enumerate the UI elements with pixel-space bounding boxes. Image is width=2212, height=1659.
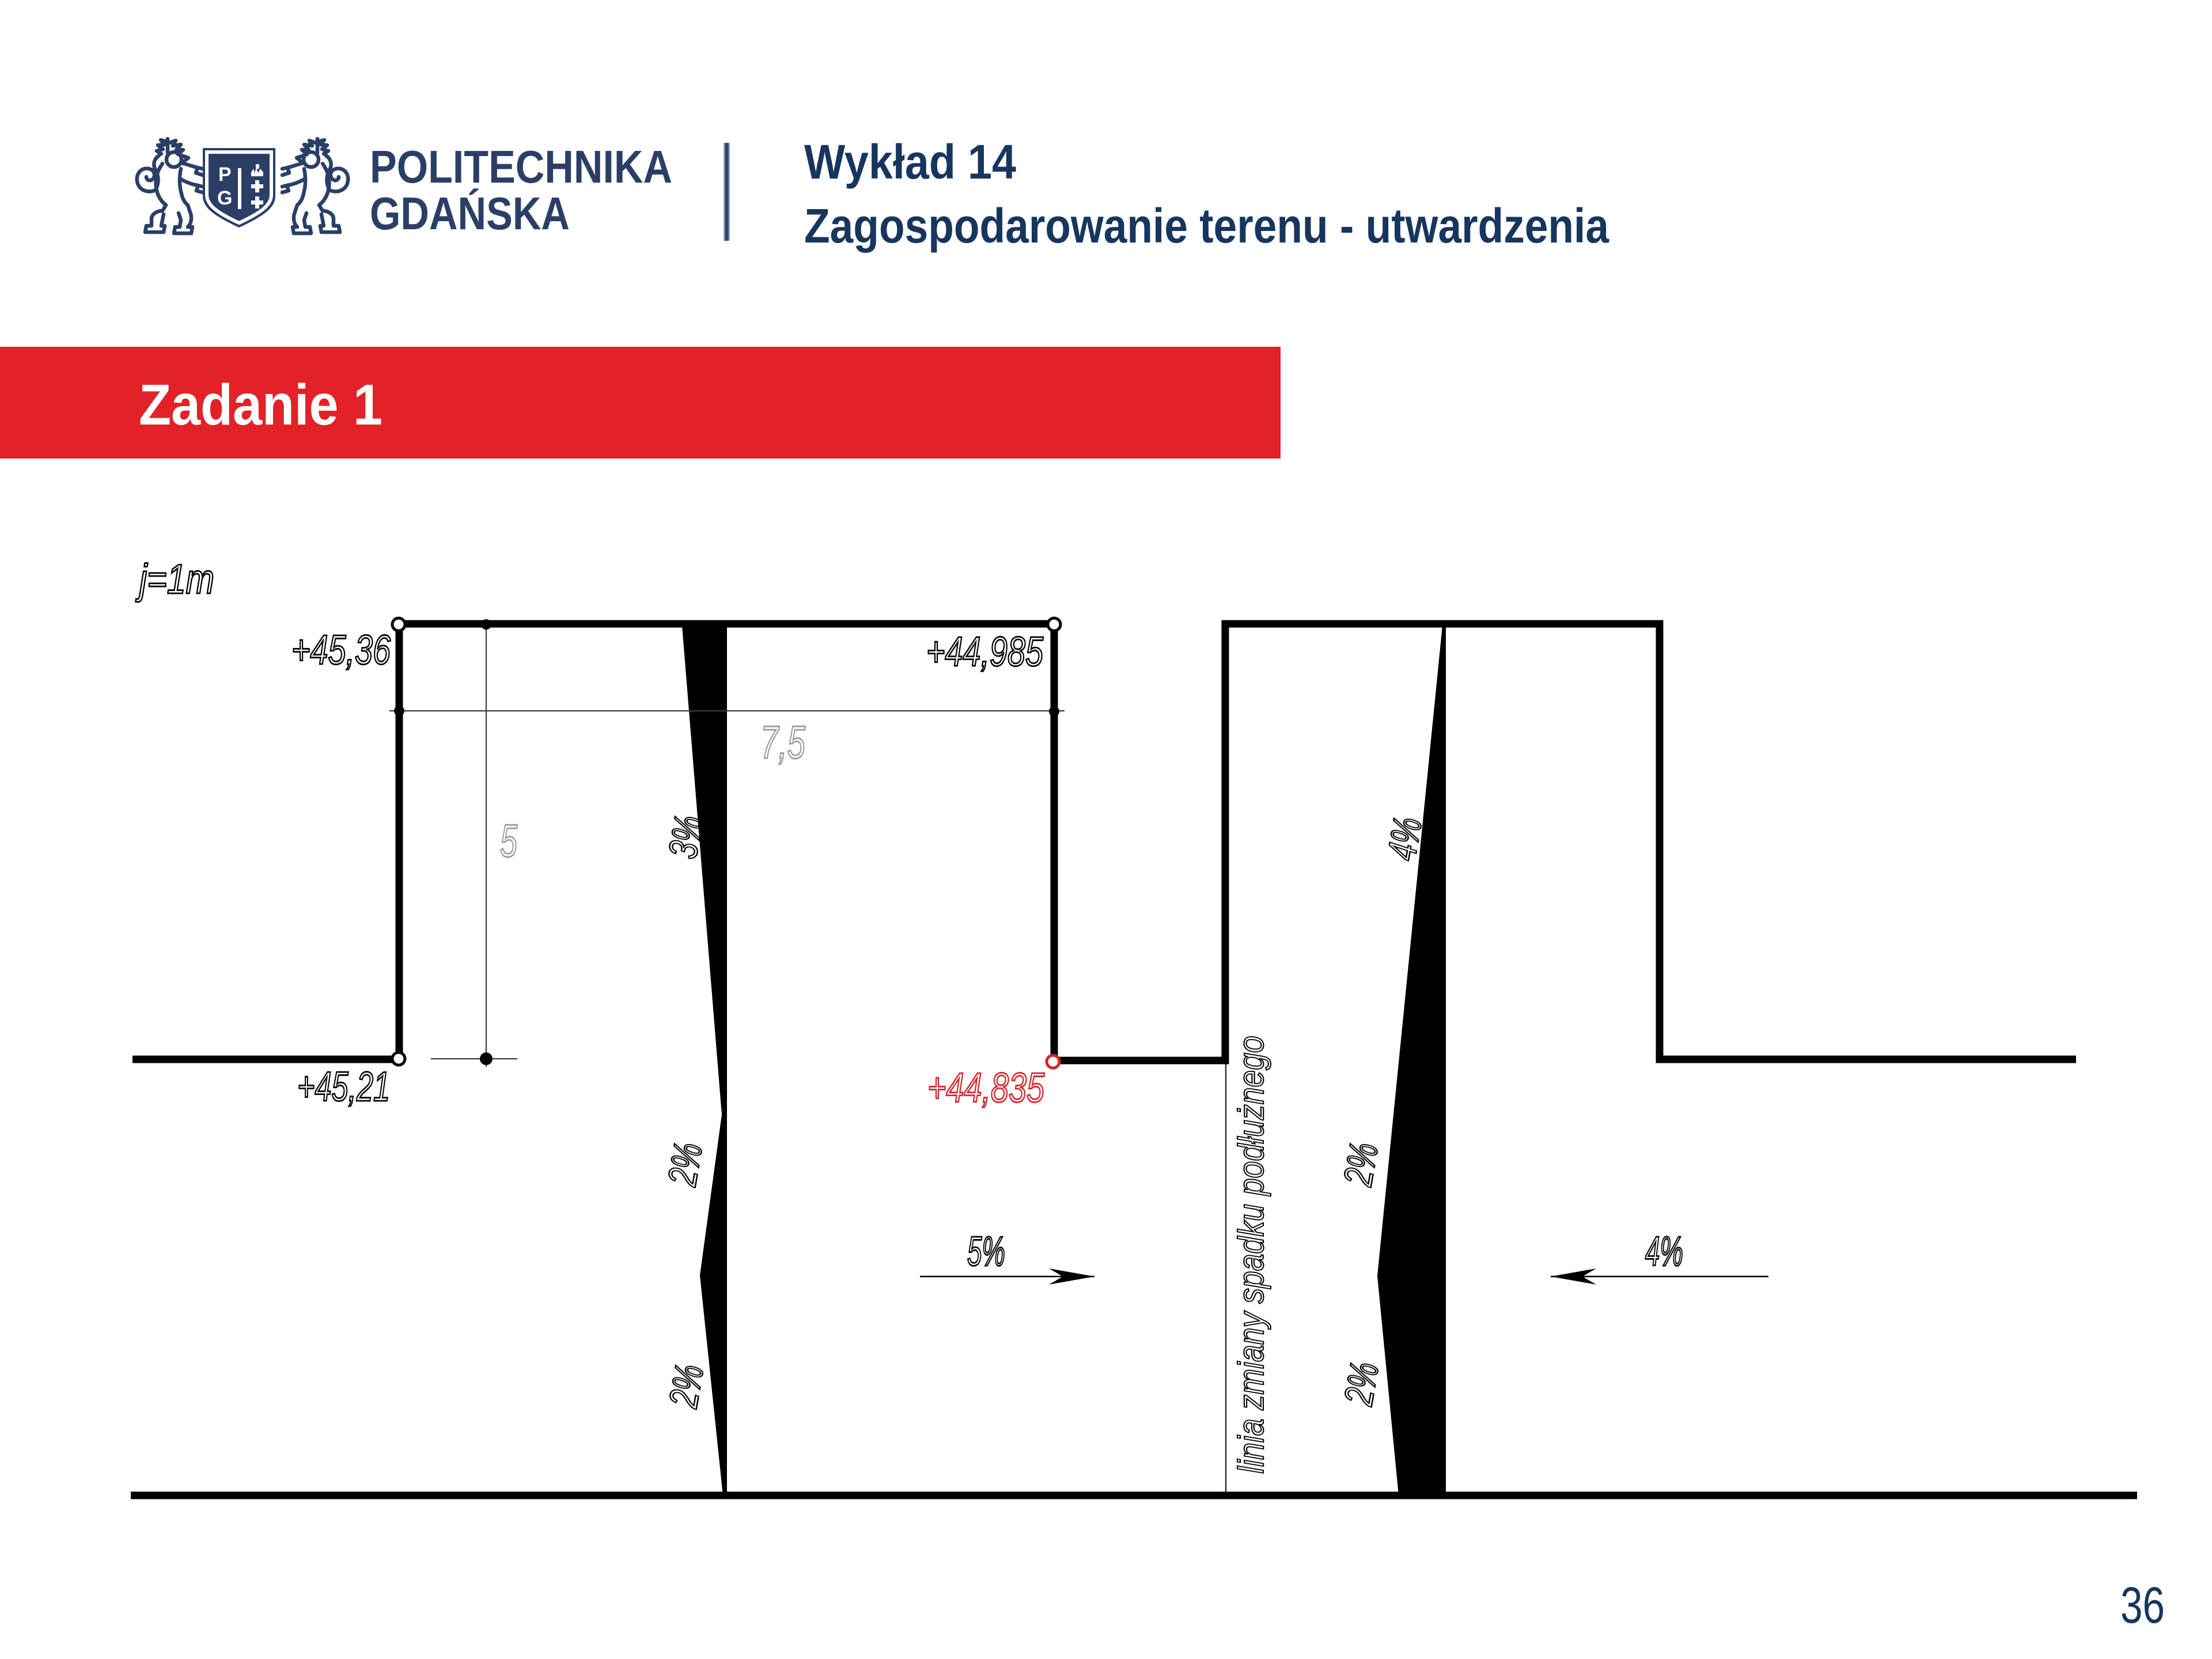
svg-text:Wykład 14: Wykład 14	[804, 135, 1016, 189]
svg-text:4%: 4%	[1645, 1229, 1683, 1275]
svg-text:+44,835: +44,835	[927, 1065, 1045, 1111]
svg-text:P: P	[218, 164, 232, 185]
svg-text:j=1m: j=1m	[135, 556, 214, 603]
svg-text:G: G	[217, 187, 232, 209]
svg-text:2%: 2%	[1335, 1139, 1387, 1190]
svg-text:Zadanie 1: Zadanie 1	[139, 373, 382, 437]
svg-text:2%: 2%	[659, 1139, 711, 1190]
svg-text:36: 36	[2120, 1576, 2165, 1634]
svg-text:POLITECHNIKA: POLITECHNIKA	[370, 141, 672, 192]
svg-text:4%: 4%	[1379, 814, 1431, 863]
svg-text:3%: 3%	[660, 812, 712, 862]
svg-text:5: 5	[500, 815, 517, 866]
svg-text:5%: 5%	[967, 1229, 1005, 1275]
svg-text:GDAŃSKA: GDAŃSKA	[370, 188, 570, 239]
svg-text:2%: 2%	[1335, 1359, 1387, 1409]
svg-text:+45,36: +45,36	[291, 627, 391, 673]
svg-text:linia zmiany spadku podłużnego: linia zmiany spadku podłużnego	[1232, 1036, 1271, 1474]
svg-text:+45,21: +45,21	[297, 1064, 390, 1110]
svg-text:2%: 2%	[660, 1361, 712, 1411]
svg-text:Zagospodarowanie terenu - utwa: Zagospodarowanie terenu - utwardzenia	[804, 199, 1609, 253]
svg-text:7,5: 7,5	[760, 717, 805, 768]
svg-text:+44,985: +44,985	[926, 629, 1044, 675]
